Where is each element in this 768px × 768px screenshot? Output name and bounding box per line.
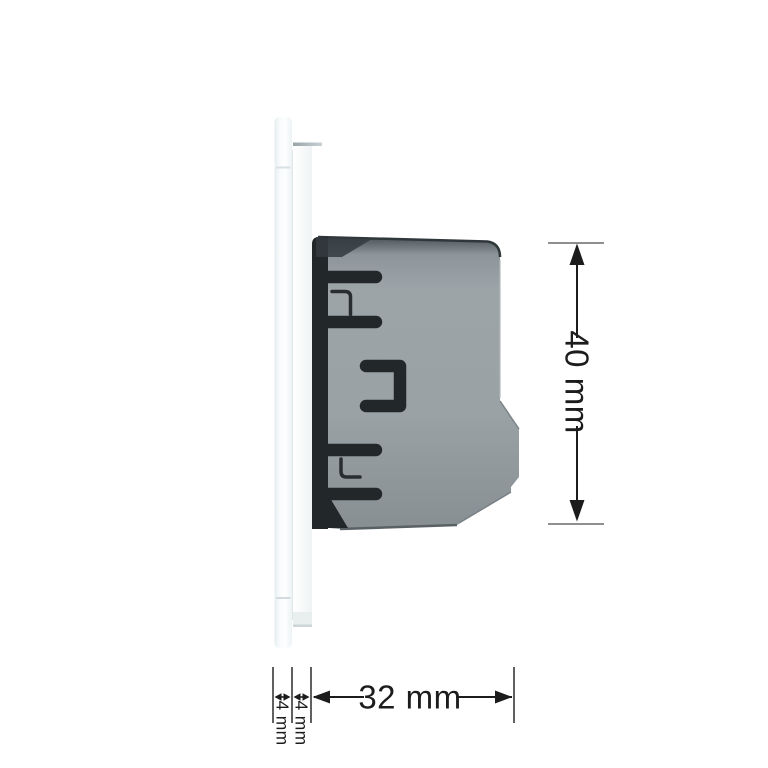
depth-arrow-right-icon	[495, 691, 513, 704]
dimension-height: 40 mm	[548, 242, 604, 525]
height-extension-line-bottom	[548, 523, 604, 525]
dimension-glass-thickness: 4 mm	[273, 693, 293, 745]
glass-panel-bottom-seam	[276, 597, 291, 599]
height-extension-line-top	[548, 242, 604, 244]
switch-body	[312, 237, 519, 529]
glass-thickness-label: 4 mm	[273, 701, 293, 746]
mounting-frame-top-edge	[293, 143, 322, 147]
dimension-body-depth: 32 mm	[313, 679, 513, 716]
height-arrow-up-icon	[570, 244, 585, 266]
height-arrow-down-icon	[570, 500, 585, 522]
height-label: 40 mm	[559, 330, 596, 433]
frame-thickness-label: 4 mm	[292, 701, 312, 746]
switch-dimension-diagram: 40 mm 4 mm 4 mm	[0, 0, 768, 768]
dimension-diagram-page: 40 mm 4 mm 4 mm	[0, 0, 768, 768]
glass-panel	[275, 117, 293, 648]
mounting-frame-bottom-edge	[293, 625, 312, 628]
dimension-frame-thickness: 4 mm	[292, 693, 312, 745]
glass-panel-face	[275, 117, 293, 648]
mounting-frame-side	[293, 146, 312, 627]
depth-arrow-left-icon	[313, 691, 331, 704]
dimension-depth: 4 mm 4 mm 32 mm	[273, 667, 515, 745]
glass-panel-top-seam	[276, 167, 291, 169]
depth-label: 32 mm	[358, 679, 461, 716]
